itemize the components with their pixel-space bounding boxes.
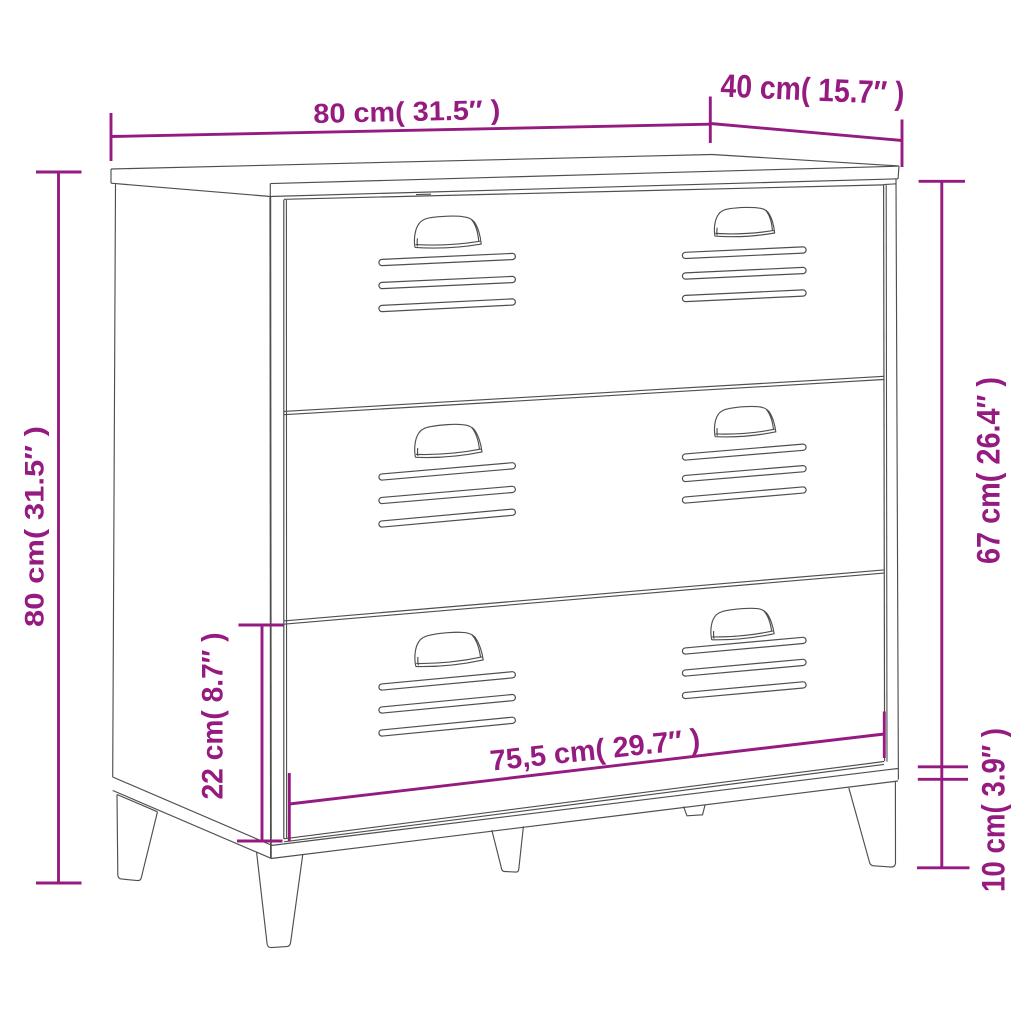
svg-text:10 cm( 3.9″ ): 10 cm( 3.9″ )	[976, 728, 1012, 892]
svg-text:22 cm( 8.7″ ): 22 cm( 8.7″ )	[196, 633, 229, 800]
svg-text:67 cm( 26.4″ ): 67 cm( 26.4″ )	[971, 377, 1007, 564]
svg-text:80 cm( 31.5″ ): 80 cm( 31.5″ )	[20, 426, 50, 627]
svg-text:80 cm( 31.5″ ): 80 cm( 31.5″ )	[313, 94, 501, 129]
